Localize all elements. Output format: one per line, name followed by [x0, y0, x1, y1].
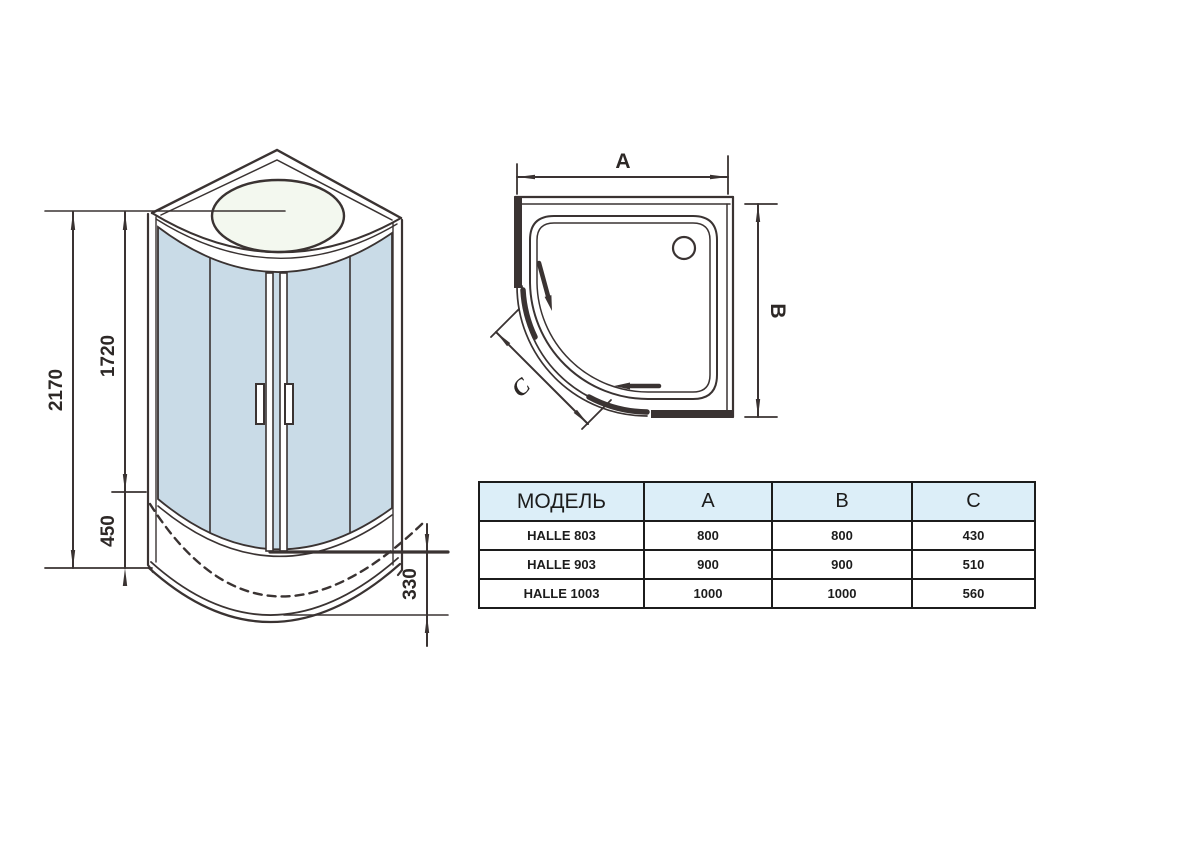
- page: 2170 1720 450 330: [0, 0, 1200, 849]
- door-handle: [256, 384, 264, 424]
- technical-drawing: 2170 1720 450 330: [0, 0, 1200, 849]
- front-dim-tray-height-label: 450: [98, 515, 119, 547]
- table-header-row: МОДЕЛЬ A B C: [479, 482, 1035, 521]
- roof-skylight: [212, 180, 344, 252]
- door-handle: [285, 384, 293, 424]
- table-row: HALLE 1003 1000 1000 560: [479, 579, 1035, 608]
- col-header-b: B: [772, 482, 912, 521]
- glass-panels: [158, 227, 392, 556]
- model-name-cell: HALLE 1003: [479, 579, 644, 608]
- value-a-cell: 800: [644, 521, 772, 550]
- table-row: HALLE 803 800 800 430: [479, 521, 1035, 550]
- top-view: A B C: [491, 150, 789, 429]
- model-name-cell: HALLE 803: [479, 521, 644, 550]
- door-direction-arrows: [539, 263, 659, 390]
- front-dim-tray-depth-label: 330: [400, 568, 421, 600]
- dimension-a: A: [517, 150, 728, 194]
- value-a-cell: 1000: [644, 579, 772, 608]
- dimension-b: B: [745, 204, 789, 417]
- model-spec-table: МОДЕЛЬ A B C HALLE 803 800 800 430 HALLE…: [478, 481, 1036, 609]
- value-b-cell: 900: [772, 550, 912, 579]
- front-view: 2170 1720 450 330: [45, 150, 448, 646]
- value-c-cell: 430: [912, 521, 1035, 550]
- wall-profile-left: [514, 197, 522, 288]
- col-header-c: C: [912, 482, 1035, 521]
- dimension-c: C: [491, 309, 611, 429]
- value-b-cell: 1000: [772, 579, 912, 608]
- col-header-model: МОДЕЛЬ: [479, 482, 644, 521]
- front-dim-total-height-label: 2170: [46, 369, 67, 411]
- value-c-cell: 560: [912, 579, 1035, 608]
- wall-profile-bottom: [651, 410, 733, 418]
- col-header-a: A: [644, 482, 772, 521]
- model-name-cell: HALLE 903: [479, 550, 644, 579]
- value-c-cell: 510: [912, 550, 1035, 579]
- front-dim-glass-height-label: 1720: [98, 335, 119, 377]
- value-a-cell: 900: [644, 550, 772, 579]
- value-b-cell: 800: [772, 521, 912, 550]
- top-dim-a-label: A: [615, 150, 630, 173]
- table-row: HALLE 903 900 900 510: [479, 550, 1035, 579]
- door-stile: [266, 273, 273, 551]
- top-dim-b-label: B: [766, 303, 789, 318]
- top-dim-c-label: C: [507, 373, 536, 402]
- drain-circle: [673, 237, 695, 259]
